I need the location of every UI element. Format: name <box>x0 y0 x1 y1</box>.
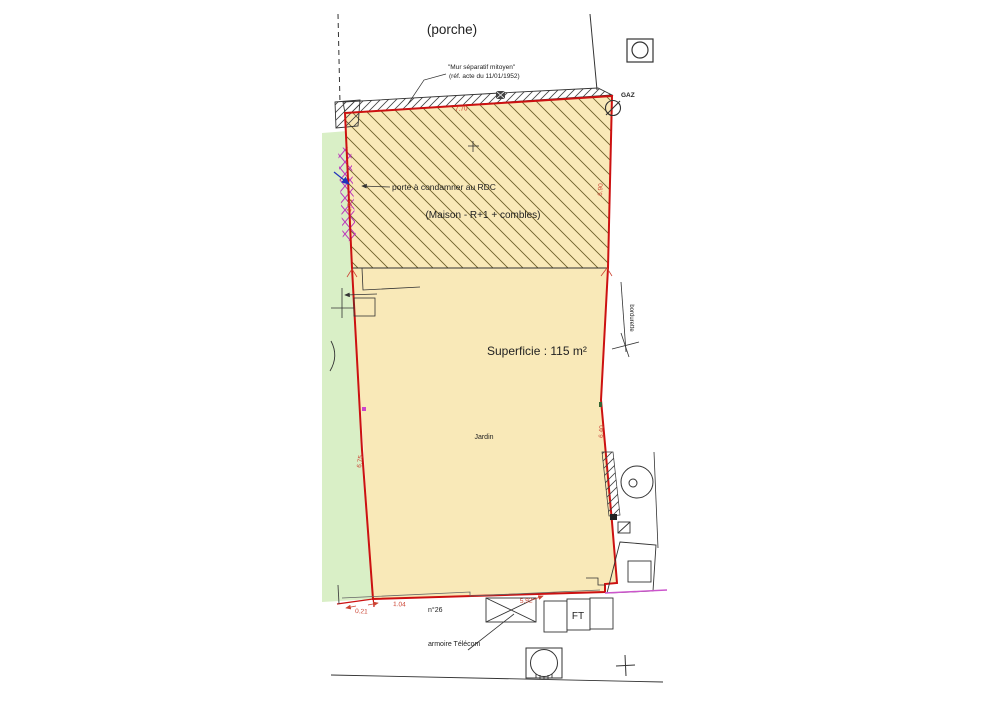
armoire-label: armoire Télécom <box>428 641 481 648</box>
superficie-label: Superficie : 115 m² <box>487 344 587 358</box>
site-plan-page: (porche) "Mur séparatif mitoyen" (réf. a… <box>0 0 1000 709</box>
mur-note-line2: (réf. acte du 11/01/1952) <box>449 73 520 80</box>
survey-cross <box>616 655 635 676</box>
wall-box-symbol <box>496 91 505 99</box>
street-line <box>331 675 663 682</box>
magenta-tick <box>362 407 366 411</box>
party-wall-left-block <box>335 100 360 128</box>
gaz-label: GAZ <box>621 92 635 99</box>
site-plan-drawing: (porche) "Mur séparatif mitoyen" (réf. a… <box>0 0 1000 709</box>
dim-jardin-right: 6.40 <box>598 425 606 438</box>
right-small-square-diagonal <box>618 522 630 533</box>
maison-label: (Maison - R+1 + combles) <box>425 210 540 221</box>
right-manhole-circle <box>621 466 653 498</box>
right-small-filled-square <box>610 514 617 520</box>
dim-top: 7.70 <box>455 105 468 113</box>
manhole-square-symbol <box>627 39 653 62</box>
ft-label: FT <box>572 611 584 622</box>
bordurette-label: bordurette <box>628 304 634 332</box>
dim-maison-left: 1.95 <box>346 199 354 213</box>
porch-left-dashed-line <box>338 14 340 104</box>
dim-bottom-b: 1.04 <box>393 601 406 608</box>
magenta-bottom-line <box>605 590 667 593</box>
jardin-label: Jardin <box>474 434 493 441</box>
mur-note-line1: "Mur séparatif mitoyen" <box>448 64 516 71</box>
porche-label: (porche) <box>427 22 477 37</box>
dim-maison-right: 6.90 <box>597 183 605 196</box>
porte-label: porte à condamner au RDC <box>392 182 496 192</box>
numero-label: n°26 <box>428 606 443 614</box>
porch-right-wall-line <box>590 14 597 90</box>
right-kerb-line <box>654 452 658 548</box>
street-manhole-symbol <box>526 648 562 679</box>
dim-bottom-c: 5.92 <box>520 597 533 605</box>
green-tick <box>599 402 602 407</box>
dim-bottom-a: 0.21 <box>355 608 368 616</box>
